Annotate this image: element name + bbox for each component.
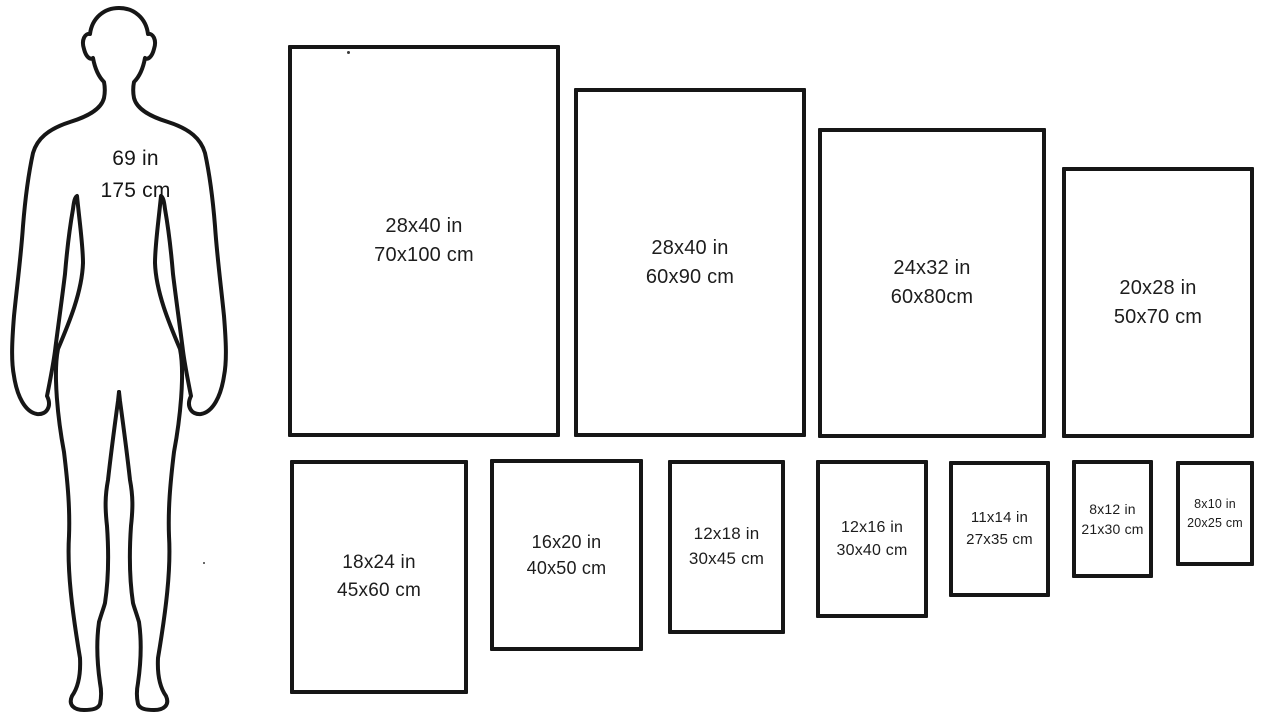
poster-size-metric: 30x40 cm: [837, 539, 908, 562]
human-silhouette: [0, 0, 248, 726]
poster-20x28in-50x70cm: 20x28 in 50x70 cm: [1062, 167, 1254, 438]
poster-8x10in-20x25cm: 8x10 in 20x25 cm: [1176, 461, 1254, 566]
poster-size-inches: 8x10 in: [1194, 495, 1236, 513]
human-height-label: 69 in 175 cm: [73, 143, 198, 206]
poster-16x20in-40x50cm: 16x20 in 40x50 cm: [490, 459, 643, 651]
poster-size-inches: 28x40 in: [651, 234, 728, 263]
poster-12x16in-30x40cm: 12x16 in 30x40 cm: [816, 460, 928, 618]
poster-8x12in-21x30cm: 8x12 in 21x30 cm: [1072, 460, 1153, 578]
poster-size-metric: 30x45 cm: [689, 547, 764, 572]
poster-size-metric: 60x90 cm: [646, 263, 734, 292]
poster-size-inches: 18x24 in: [342, 549, 415, 577]
poster-size-metric: 20x25 cm: [1187, 514, 1243, 532]
poster-size-inches: 12x16 in: [841, 516, 903, 539]
poster-size-inches: 12x18 in: [694, 522, 760, 547]
poster-size-metric: 27x35 cm: [966, 529, 1033, 551]
poster-size-inches: 24x32 in: [893, 254, 970, 283]
poster-size-metric: 45x60 cm: [337, 577, 421, 605]
poster-size-inches: 11x14 in: [971, 507, 1028, 529]
poster-12x18in-30x45cm: 12x18 in 30x45 cm: [668, 460, 785, 634]
poster-size-comparison-diagram: 69 in 175 cm 28x40 in 70x100 cm 28x40 in…: [0, 0, 1280, 726]
poster-24x32in-60x80cm: 24x32 in 60x80cm: [818, 128, 1046, 438]
poster-size-metric: 21x30 cm: [1081, 519, 1143, 539]
poster-size-inches: 20x28 in: [1119, 274, 1196, 303]
human-height-inches: 69 in: [73, 143, 198, 175]
artifact-dot: [203, 562, 205, 564]
poster-size-inches: 8x12 in: [1089, 499, 1136, 519]
poster-28x40in-70x100cm: 28x40 in 70x100 cm: [288, 45, 560, 437]
poster-size-metric: 50x70 cm: [1114, 303, 1202, 332]
poster-size-metric: 70x100 cm: [374, 241, 474, 270]
poster-28x40in-60x90cm: 28x40 in 60x90 cm: [574, 88, 806, 437]
poster-size-metric: 40x50 cm: [527, 555, 607, 581]
human-height-cm: 175 cm: [73, 175, 198, 207]
poster-size-metric: 60x80cm: [891, 283, 974, 312]
poster-size-inches: 28x40 in: [385, 212, 462, 241]
poster-18x24in-45x60cm: 18x24 in 45x60 cm: [290, 460, 468, 694]
poster-11x14in-27x35cm: 11x14 in 27x35 cm: [949, 461, 1050, 597]
poster-size-inches: 16x20 in: [532, 529, 602, 555]
artifact-dot: [347, 51, 350, 54]
